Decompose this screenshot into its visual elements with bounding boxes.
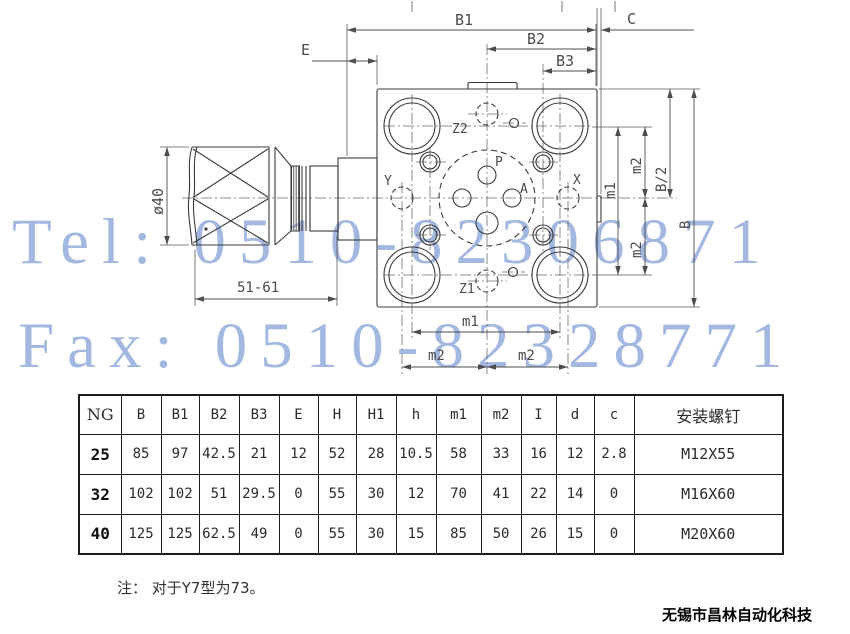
table-cell: M16X60 (634, 474, 783, 514)
table-cell: 26 (521, 514, 556, 554)
table-cell: 58 (436, 434, 481, 474)
spec-table-head-row: NGBB1B2B3EHH1hm1m2Idc安装螺钉 (79, 395, 783, 434)
table-cell: 16 (521, 434, 556, 474)
valve-body-collar (338, 158, 377, 240)
spec-table-body: 25859742.52112522810.5583316122.8M12X553… (79, 434, 783, 554)
table-row-1: 321021025129.50553012704122140M16X60 (79, 474, 783, 514)
dim-label-m1-right: m1 (603, 182, 619, 199)
table-cell: 12 (279, 434, 318, 474)
table-cell: 0 (594, 474, 634, 514)
column-header-4: B3 (239, 395, 279, 434)
table-cell: 85 (121, 434, 161, 474)
table-cell: 15 (556, 514, 594, 554)
dim-label-b1: B1 (455, 11, 473, 29)
table-cell: 41 (481, 474, 521, 514)
pilot-holes (420, 119, 553, 277)
table-cell: 15 (396, 514, 436, 554)
column-header-0: NG (79, 395, 121, 434)
table-cell: 25 (79, 434, 121, 474)
table-cell: 49 (239, 514, 279, 554)
ports (391, 103, 579, 292)
dim-label-m2-bottom-right: m2 (518, 348, 535, 364)
table-cell: 0 (594, 514, 634, 554)
column-header-5: E (279, 395, 318, 434)
table-cell: 40 (79, 514, 121, 554)
table-cell: M12X55 (634, 434, 783, 474)
table-cell: 55 (318, 514, 356, 554)
column-header-3: B2 (199, 395, 239, 434)
table-cell: 52 (318, 434, 356, 474)
table-cell: 10.5 (396, 434, 436, 474)
table-cell: 33 (481, 434, 521, 474)
table-cell: 62.5 (199, 514, 239, 554)
column-header-11: I (521, 395, 556, 434)
table-cell: 55 (318, 474, 356, 514)
dim-label-b-half: B/2 (654, 167, 670, 192)
dim-label-b: B (678, 221, 694, 229)
table-cell: 22 (521, 474, 556, 514)
table-cell: 125 (161, 514, 199, 554)
table-row-0: 25859742.52112522810.5583316122.8M12X55 (79, 434, 783, 474)
table-cell: 42.5 (199, 434, 239, 474)
dimension-labels: B1 C B2 B3 E ø40 51-61 m1 m2 B/2 m2 B m1… (149, 10, 694, 364)
table-cell: 125 (121, 514, 161, 554)
table-cell: 14 (556, 474, 594, 514)
table-cell: 32 (79, 474, 121, 514)
port-label-x: X (573, 173, 581, 188)
table-cell: 51 (199, 474, 239, 514)
port-label-z2: Z2 (452, 122, 468, 137)
table-cell: 29.5 (239, 474, 279, 514)
port-label-y: Y (384, 174, 392, 189)
table-cell: 70 (436, 474, 481, 514)
table-row-2: 4012512562.5490553015855026150M20X60 (79, 514, 783, 554)
adjustment-knob (188, 147, 377, 245)
table-cell: 12 (556, 434, 594, 474)
spec-table: NGBB1B2B3EHH1hm1m2Idc安装螺钉 25859742.52112… (78, 394, 784, 555)
column-header-6: H (318, 395, 356, 434)
note-text: 注： 对于Y7型为73。 (117, 577, 265, 598)
table-cell: 28 (356, 434, 396, 474)
column-header-12: d (556, 395, 594, 434)
table-cell: 21 (239, 434, 279, 474)
thread-section (292, 166, 300, 231)
table-cell: 102 (161, 474, 199, 514)
column-header-14: 安装螺钉 (634, 395, 783, 434)
table-cell: 30 (356, 514, 396, 554)
column-header-7: H1 (356, 395, 396, 434)
dim-label-m2-right-bottom: m2 (629, 241, 645, 258)
port-label-a: A (520, 182, 528, 197)
company-name: 无锡市昌林自动化科技 (662, 604, 812, 625)
table-cell: 0 (279, 514, 318, 554)
table-cell: 0 (279, 474, 318, 514)
dim-label-knob-diameter: ø40 (149, 188, 167, 215)
dim-label-b3: B3 (556, 52, 574, 70)
dim-label-m2-right-top: m2 (629, 157, 645, 174)
table-cell: 30 (356, 474, 396, 514)
valve-block: Z2 P A Y X Z1 (377, 83, 601, 308)
mounting-holes (384, 98, 588, 303)
table-cell: 97 (161, 434, 199, 474)
column-header-13: c (594, 395, 634, 434)
valve-drawing: Z2 P A Y X Z1 (0, 0, 850, 392)
table-cell: 2.8 (594, 434, 634, 474)
table-cell: 50 (481, 514, 521, 554)
table-cell: 102 (121, 474, 161, 514)
column-header-9: m1 (436, 395, 481, 434)
column-header-1: B (121, 395, 161, 434)
dim-label-m2-bottom-left: m2 (428, 348, 445, 364)
port-label-z1: Z1 (459, 282, 475, 297)
side-tab (597, 196, 601, 222)
dim-label-c: C (627, 10, 636, 28)
drawing-page: Tel: 0510-82306871 Fax: 0510-82328771 (0, 0, 850, 634)
table-cell: 12 (396, 474, 436, 514)
top-tab (468, 83, 517, 90)
column-header-10: m2 (481, 395, 521, 434)
table-cell: M20X60 (634, 514, 783, 554)
dim-label-b2: B2 (527, 30, 545, 48)
column-header-8: h (396, 395, 436, 434)
table-cell: 85 (436, 514, 481, 554)
dim-label-adjust-length: 51-61 (237, 280, 279, 296)
dim-label-e: E (301, 41, 310, 59)
port-label-p: P (495, 155, 503, 170)
column-header-2: B1 (161, 395, 199, 434)
dim-label-m1-bottom: m1 (462, 314, 479, 330)
